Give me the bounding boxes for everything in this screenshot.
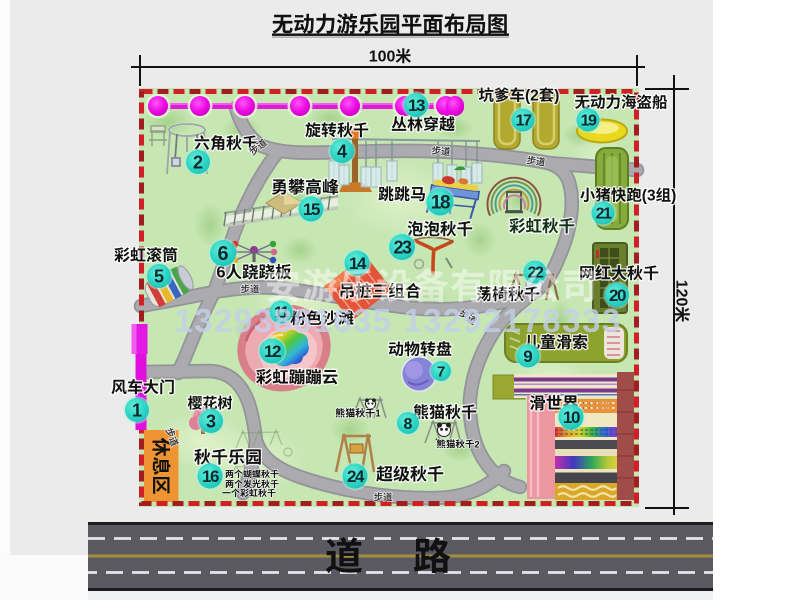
svg-text:21: 21 [596,206,612,223]
svg-text:13293861635 13292178333: 13293861635 13292178333 [174,302,621,339]
svg-text:19: 19 [581,113,597,130]
svg-text:5: 5 [154,266,164,286]
svg-text:12: 12 [264,342,281,361]
svg-text:24: 24 [347,467,365,486]
svg-text:17: 17 [516,113,532,130]
svg-text:100: 100 [369,49,396,66]
svg-text:18: 18 [431,193,450,214]
svg-text:16: 16 [202,467,219,486]
svg-text:3: 3 [206,411,216,431]
svg-text:1: 1 [375,409,381,420]
svg-text:(3: (3 [642,187,656,204]
svg-text:9: 9 [523,347,532,366]
svg-text:7: 7 [437,363,445,380]
svg-text:): ) [671,187,676,204]
svg-text:120: 120 [673,280,690,307]
svg-text:8: 8 [404,416,413,433]
svg-text:23: 23 [393,237,412,257]
svg-text:15: 15 [303,200,320,219]
svg-text:): ) [554,87,559,104]
svg-text:6: 6 [217,243,228,265]
svg-text:2: 2 [193,152,203,172]
svg-text:(2: (2 [525,87,539,104]
svg-text:13: 13 [408,96,425,115]
svg-text:4: 4 [337,141,347,161]
svg-text:1: 1 [132,400,142,420]
svg-text:2: 2 [474,439,479,450]
svg-text:10: 10 [563,408,580,427]
